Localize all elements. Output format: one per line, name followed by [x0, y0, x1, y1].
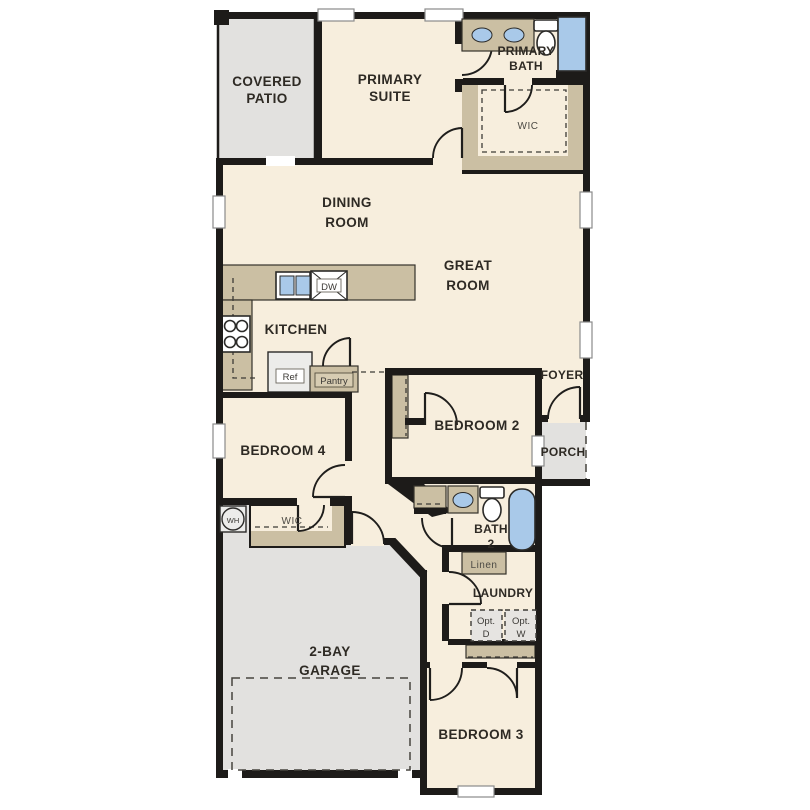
foyer-label: FOYER: [541, 368, 584, 382]
covered-patio-label-2: PATIO: [246, 91, 287, 106]
bath2-sink: [453, 493, 473, 508]
primary-bath-label-2: BATH: [509, 59, 543, 73]
window-great-room-2: [580, 322, 592, 358]
bath2-toilet-bowl: [483, 499, 501, 522]
patio-corner-post: [214, 10, 229, 25]
primary-suite-label-1: PRIMARY: [358, 72, 423, 87]
bedroom3-label: BEDROOM 3: [438, 727, 523, 742]
bath2-label-2: 2: [488, 537, 495, 551]
bedroom2-label: BEDROOM 2: [434, 418, 519, 433]
primary-suite-label-2: SUITE: [369, 89, 411, 104]
great-room-label-1: GREAT: [444, 258, 493, 273]
kitchen-sink-basin-left: [280, 276, 294, 295]
opt-dryer-label-2: D: [483, 629, 490, 640]
primary-wic-shelf-right: [568, 85, 583, 156]
opt-washer-label-1: Opt.: [512, 616, 530, 627]
covered-patio-label-1: COVERED: [232, 74, 302, 89]
primary-wic-shelf-bottom: [462, 156, 590, 172]
refrigerator-label: Ref: [283, 372, 298, 383]
stove-burner-4: [237, 337, 248, 348]
window-bedroom4: [213, 424, 225, 458]
bath2-label-1: BATH: [474, 522, 508, 536]
floorplan-page: COVERED PATIO PRIMARY SUITE PRIMARY BATH…: [0, 0, 810, 810]
garage-label-2: GARAGE: [299, 663, 361, 678]
window-great-room-1: [580, 192, 592, 228]
window-primary-suite-1: [318, 9, 354, 21]
bed4-wic-label: WIC: [282, 516, 303, 527]
bath2-cabinet: [414, 486, 446, 508]
bath2-toilet-tank: [480, 487, 504, 498]
bath2-cabinet-base: [414, 508, 446, 514]
primary-bath-label-1: PRIMARY: [498, 44, 555, 58]
bedroom2-closet-stub: [405, 418, 425, 425]
porch-label: PORCH: [541, 445, 586, 459]
garage-label-1: 2-BAY: [309, 644, 350, 659]
kitchen-label: KITCHEN: [265, 322, 328, 337]
primary-bath-sink-2: [504, 28, 524, 42]
primary-wic-label: WIC: [518, 121, 539, 132]
window-primary-suite-2: [425, 9, 463, 21]
primary-bath-sink-1: [472, 28, 492, 42]
opt-washer-label-2: W: [517, 629, 526, 640]
bedroom3-closet-shelf: [466, 645, 535, 658]
pantry-label: Pantry: [320, 376, 348, 387]
bath2-tub: [509, 489, 535, 550]
dining-label-1: DINING: [322, 195, 372, 210]
stove-burner-3: [225, 337, 236, 348]
linen-label: Linen: [471, 560, 498, 571]
opt-dryer-label-1: Opt.: [477, 616, 495, 627]
water-heater-label: WH: [227, 516, 240, 525]
bed4-wic-shelf-bottom: [251, 531, 344, 546]
primary-wic-shelf-left: [462, 85, 478, 156]
bedroom4-label: BEDROOM 4: [240, 443, 325, 458]
window-dining: [213, 196, 225, 228]
stove-burner-2: [237, 321, 248, 332]
primary-shower: [558, 17, 586, 71]
window-bedroom3: [458, 786, 494, 797]
kitchen-sink-basin-right: [296, 276, 310, 295]
laundry-label: LAUNDRY: [473, 586, 533, 600]
great-room-label-2: ROOM: [446, 278, 490, 293]
bed4-wic-shelf-right: [332, 506, 344, 546]
patio-opening: [266, 156, 295, 166]
stove-burner-1: [225, 321, 236, 332]
primary-toilet-tank: [534, 20, 558, 31]
floorplan-svg: COVERED PATIO PRIMARY SUITE PRIMARY BATH…: [0, 0, 810, 810]
dishwasher-label: DW: [321, 282, 337, 293]
dining-label-2: ROOM: [325, 215, 369, 230]
